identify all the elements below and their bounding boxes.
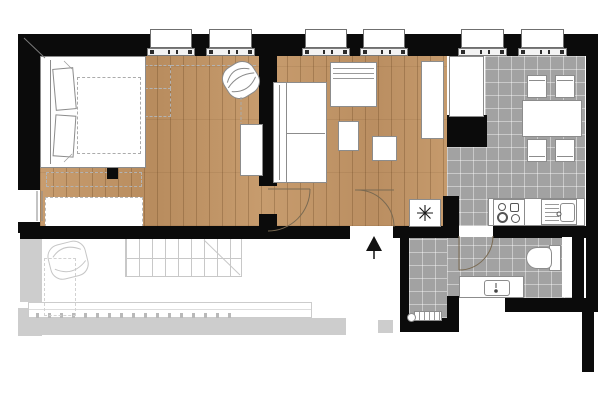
coffee-table bbox=[372, 136, 397, 161]
rug-outline bbox=[45, 197, 143, 227]
sink-basin bbox=[560, 203, 575, 222]
sofa-back bbox=[274, 83, 287, 182]
dashed-outline-under-bed bbox=[46, 172, 142, 187]
window-frame bbox=[305, 29, 347, 48]
bed-headboard bbox=[50, 60, 51, 164]
water-heater bbox=[409, 199, 441, 227]
terrace-paving bbox=[20, 234, 42, 302]
window-frame bbox=[363, 29, 405, 48]
outdoor-stairs bbox=[125, 238, 242, 277]
window-sill bbox=[360, 48, 408, 56]
window-top bbox=[518, 29, 567, 56]
burner bbox=[511, 214, 520, 223]
dining-table bbox=[522, 100, 582, 137]
window-sill bbox=[302, 48, 350, 56]
wall-east-bottom bbox=[505, 298, 598, 312]
wall-column bbox=[107, 167, 118, 179]
dining-chair bbox=[555, 75, 575, 98]
vanity bbox=[459, 276, 524, 298]
sofa bbox=[273, 82, 327, 183]
wall-right bbox=[586, 34, 598, 312]
daybed bbox=[330, 62, 377, 107]
dining-chair bbox=[555, 139, 575, 162]
sink-drainer bbox=[545, 204, 559, 221]
outdoor-dashed-outline bbox=[44, 258, 76, 316]
wall-divider-stub bbox=[259, 214, 277, 226]
tall-cabinet bbox=[449, 56, 484, 117]
vanity-basin bbox=[484, 280, 510, 296]
window-top bbox=[360, 29, 408, 56]
dining-chair bbox=[527, 75, 547, 98]
floor-plan bbox=[0, 0, 600, 400]
sofa-seat-split bbox=[287, 133, 325, 134]
window-frame bbox=[150, 29, 192, 48]
window-top bbox=[302, 29, 350, 56]
wall-kitchen-block bbox=[447, 115, 487, 147]
wall-bottom-living bbox=[20, 226, 350, 239]
radiator bbox=[414, 311, 442, 321]
toilet bbox=[526, 247, 552, 269]
double-bed bbox=[40, 56, 146, 168]
tall-wardrobe bbox=[421, 61, 444, 139]
bed-duvet bbox=[77, 77, 141, 154]
wall-left bbox=[18, 34, 40, 190]
wall-bath-stub bbox=[447, 296, 459, 318]
window-top bbox=[206, 29, 255, 56]
burner bbox=[510, 203, 519, 212]
window-frame bbox=[209, 29, 252, 48]
window-sill bbox=[458, 48, 507, 56]
wardrobe-dashed-outline bbox=[145, 65, 171, 89]
wardrobe-dashed-outline bbox=[145, 88, 171, 117]
window-sill bbox=[147, 48, 195, 56]
window-frame bbox=[461, 29, 504, 48]
window-sill bbox=[518, 48, 567, 56]
wall-bath-right bbox=[572, 235, 584, 298]
tile-floor-bath-hall bbox=[409, 237, 447, 318]
sofa-back-line bbox=[279, 85, 280, 180]
window-frame bbox=[521, 29, 564, 48]
burner bbox=[497, 212, 508, 223]
kitchen-sink bbox=[541, 199, 577, 225]
side-cabinet bbox=[240, 124, 263, 176]
dashed-rail-line bbox=[171, 65, 256, 66]
window-top bbox=[147, 29, 195, 56]
window-top bbox=[458, 29, 507, 56]
bed-pillow bbox=[52, 67, 77, 111]
wall-freestanding bbox=[582, 312, 594, 372]
wall-hall-piece bbox=[443, 196, 459, 228]
window-left bbox=[18, 190, 40, 222]
daybed-backrest bbox=[333, 66, 374, 79]
terrace-paving bbox=[378, 320, 393, 333]
dining-chair bbox=[527, 139, 547, 162]
cooktop bbox=[493, 199, 525, 226]
burner bbox=[498, 203, 506, 211]
entrance-arrow bbox=[366, 236, 382, 259]
side-table bbox=[338, 121, 359, 151]
window-sill bbox=[206, 48, 255, 56]
bed-pillow bbox=[53, 114, 77, 157]
duct-shaft bbox=[562, 237, 572, 297]
